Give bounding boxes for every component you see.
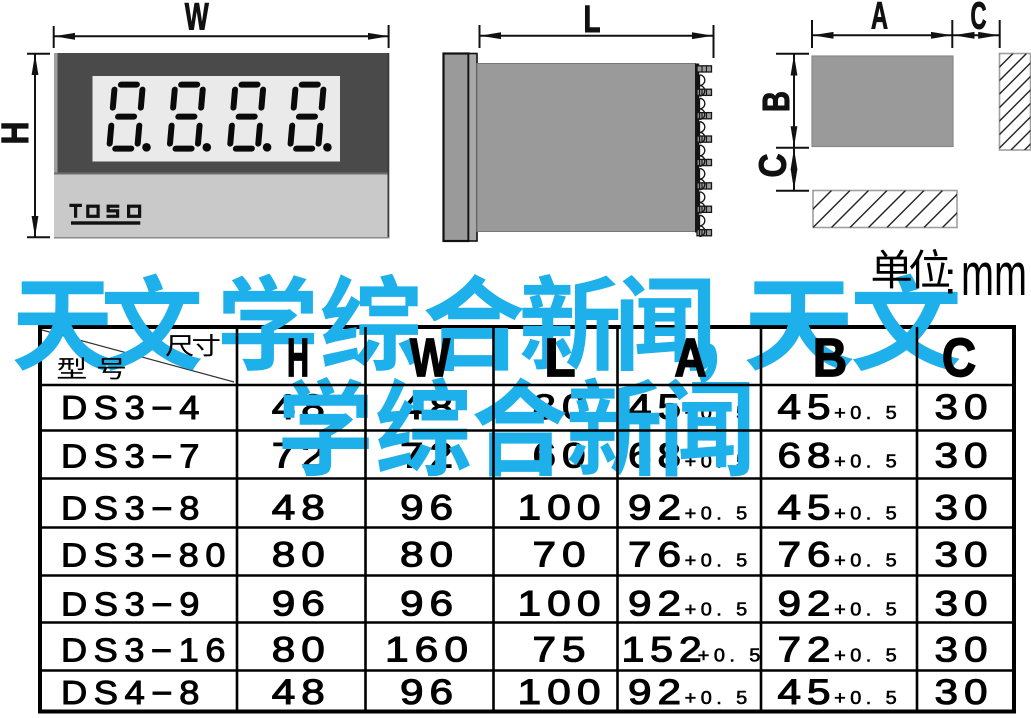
svg-text:92: 92	[628, 488, 687, 528]
svg-text:68: 68	[628, 436, 687, 476]
svg-text:DS3−4: DS3−4	[61, 389, 206, 426]
svg-text:96: 96	[272, 584, 331, 624]
svg-text:76: 76	[778, 535, 837, 575]
svg-text:+0. 5: +0. 5	[834, 504, 901, 524]
svg-text:68: 68	[778, 436, 837, 476]
svg-text:C: C	[942, 328, 976, 388]
svg-text:72: 72	[778, 630, 837, 670]
svg-text:92: 92	[778, 584, 837, 624]
svg-text:30: 30	[935, 387, 994, 427]
svg-text:30: 30	[935, 584, 994, 624]
svg-text:152: 152	[622, 630, 708, 670]
svg-text:B: B	[813, 328, 847, 388]
svg-text:mm: mm	[961, 241, 1027, 308]
svg-text:DS3−9: DS3−9	[61, 586, 206, 623]
svg-text:70: 70	[533, 535, 592, 575]
svg-text:+0. 5: +0. 5	[834, 646, 901, 666]
svg-text:DS4−8: DS4−8	[61, 674, 206, 711]
svg-text:45: 45	[778, 672, 837, 712]
svg-text:+0. 5: +0. 5	[834, 600, 901, 620]
svg-text:30: 30	[935, 630, 994, 670]
svg-text:+0. 5: +0. 5	[685, 688, 752, 708]
svg-text:A: A	[871, 0, 888, 38]
svg-text:+0. 5: +0. 5	[834, 551, 901, 571]
svg-text:92: 92	[628, 672, 687, 712]
svg-text:L: L	[584, 0, 601, 41]
svg-text:30: 30	[935, 535, 994, 575]
svg-text:DS3−16: DS3−16	[61, 632, 232, 669]
svg-text:W: W	[185, 0, 209, 39]
svg-text:100: 100	[518, 672, 607, 712]
svg-text:48: 48	[272, 672, 331, 712]
svg-text:DS3−80: DS3−80	[61, 537, 232, 574]
svg-text:30: 30	[935, 436, 994, 476]
svg-text:45: 45	[778, 387, 837, 427]
svg-text:80: 80	[272, 630, 331, 670]
svg-text:+0. 5: +0. 5	[834, 688, 901, 708]
svg-text:96: 96	[400, 488, 459, 528]
svg-text:+0. 5: +0. 5	[834, 403, 901, 423]
svg-text:B: B	[756, 91, 798, 112]
svg-text:W: W	[410, 328, 450, 388]
svg-text:DS3−8: DS3−8	[61, 490, 206, 527]
svg-text:45: 45	[778, 488, 837, 528]
svg-text:100: 100	[518, 584, 607, 624]
svg-text:30: 30	[935, 488, 994, 528]
svg-text:C: C	[971, 0, 987, 38]
svg-text:160: 160	[385, 630, 474, 670]
svg-text:76: 76	[628, 535, 687, 575]
svg-text:+0. 5: +0. 5	[834, 452, 901, 472]
svg-text:C: C	[753, 154, 795, 178]
svg-text:92: 92	[628, 584, 687, 624]
svg-text:H: H	[0, 122, 37, 145]
svg-text:L: L	[545, 328, 576, 388]
svg-text:+0. 5: +0. 5	[685, 600, 752, 620]
svg-text:48: 48	[272, 488, 331, 528]
svg-text:+0. 5: +0. 5	[685, 504, 752, 524]
svg-text:80: 80	[400, 535, 459, 575]
svg-text:80: 80	[272, 535, 331, 575]
svg-text:96: 96	[400, 672, 459, 712]
svg-text:+0. 5: +0. 5	[698, 646, 765, 666]
svg-text:H: H	[287, 328, 309, 388]
svg-text:100: 100	[518, 488, 607, 528]
svg-text:+0. 5: +0. 5	[685, 551, 752, 571]
svg-text:96: 96	[400, 584, 459, 624]
svg-text:75: 75	[533, 630, 592, 670]
svg-text:A: A	[675, 328, 707, 388]
svg-text:DS3−7: DS3−7	[61, 438, 206, 475]
svg-text:30: 30	[935, 672, 994, 712]
